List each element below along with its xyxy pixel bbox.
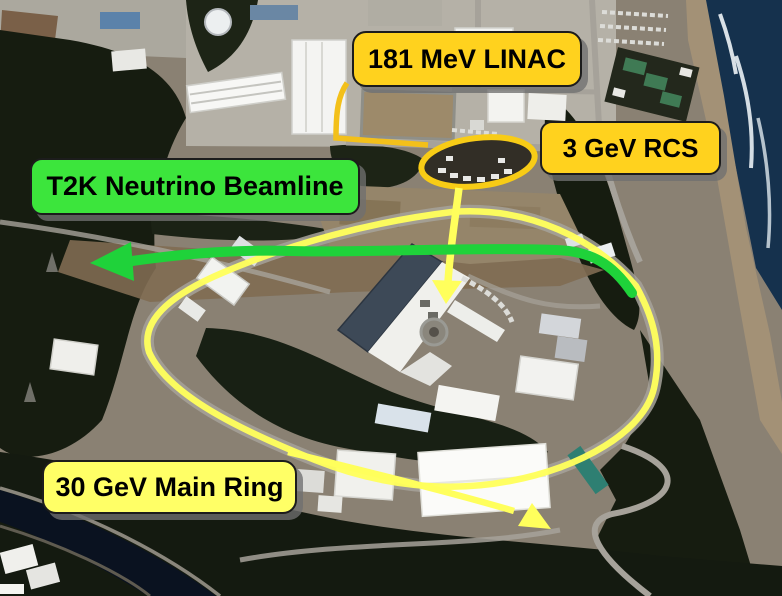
annotated-aerial-view: 181 MeV LINAC 3 GeV RCS T2K Neutrino Bea… [0,0,782,596]
label-rcs: 3 GeV RCS [540,121,721,175]
label-t2k: T2K Neutrino Beamline [30,158,360,215]
label-main-ring: 30 GeV Main Ring [42,460,297,514]
linac-berm [361,90,455,139]
label-linac: 181 MeV LINAC [352,31,582,87]
